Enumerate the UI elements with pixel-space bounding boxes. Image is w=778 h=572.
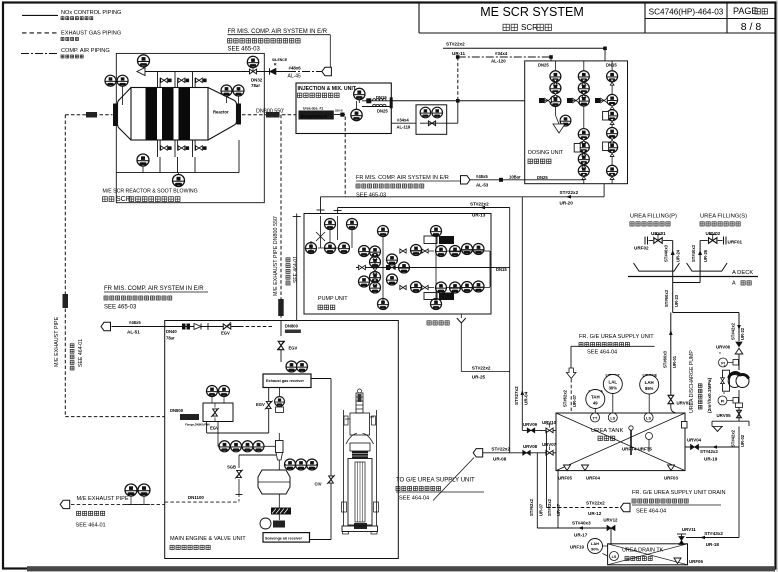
svg-text:M/E EXHAUST PIPE DN800 550': M/E EXHAUST PIPE DN800 550'	[273, 216, 279, 296]
svg-text:SEE 464-04: SEE 464-04	[636, 509, 666, 515]
svg-text:ST#40x3: ST#40x3	[691, 244, 696, 262]
svg-text:URF02: URF02	[634, 246, 649, 251]
svg-text:10Bar: 10Bar	[509, 175, 521, 180]
svg-text:ST#22x2: ST#22x2	[586, 501, 605, 506]
svg-text:ST#43x2: ST#43x2	[704, 531, 723, 536]
svg-text:ST#60x3: ST#60x3	[664, 289, 669, 307]
svg-text:Exhaust gas receiver: Exhaust gas receiver	[266, 379, 305, 383]
svg-text:ST#42x2: ST#42x2	[731, 429, 736, 447]
svg-text:DN1100: DN1100	[188, 495, 204, 500]
svg-text:PI: PI	[721, 400, 725, 404]
svg-text:CIV: CIV	[315, 482, 322, 487]
svg-text:AL-51: AL-51	[127, 330, 140, 335]
svg-text:ST#22x2: ST#22x2	[446, 42, 465, 47]
svg-text:#48x5: #48x5	[129, 320, 141, 325]
svg-text:URV08: URV08	[523, 444, 538, 449]
svg-text:UR-26: UR-26	[703, 249, 708, 262]
svg-text:M/E EXHAUST PIPE: M/E EXHAUST PIPE	[77, 496, 129, 502]
svg-text:FR MIS. COMP. AIR SYSTEM IN E/: FR MIS. COMP. AIR SYSTEM IN E/R	[228, 29, 328, 35]
svg-text:*: *	[719, 352, 721, 358]
svg-text:UR-25: UR-25	[472, 375, 486, 380]
svg-text:URV01: URV01	[651, 231, 666, 236]
svg-text:URV05: URV05	[717, 413, 732, 418]
svg-text:ST#22x2: ST#22x2	[472, 366, 491, 371]
svg-text:AL-45: AL-45	[288, 74, 302, 80]
svg-text:SC4746(HP)-464-03: SC4746(HP)-464-03	[649, 8, 724, 17]
svg-text:DN15: DN15	[376, 95, 387, 100]
svg-text:UREA FILLING(S): UREA FILLING(S)	[700, 214, 747, 220]
svg-text:UR-13: UR-13	[472, 213, 486, 218]
svg-text:MAIN ENGINE & VALVE UNIT: MAIN ENGINE & VALVE UNIT	[170, 536, 246, 542]
svg-text:URF05: URF05	[558, 476, 572, 481]
svg-text:ME SCR SYSTEM: ME SCR SYSTEM	[480, 5, 584, 19]
svg-text:FR MIS. COMP. AIR SYSTEM IN E/: FR MIS. COMP. AIR SYSTEM IN E/R	[104, 286, 204, 292]
svg-text:ST#62x2: ST#62x2	[563, 389, 568, 407]
svg-text:Flange,DN800,PN6: Flange,DN800,PN6	[185, 423, 210, 427]
svg-text:UR-12: UR-12	[588, 511, 602, 516]
svg-text:SEE 465-03: SEE 465-03	[228, 47, 261, 53]
svg-text:85%: 85%	[645, 386, 654, 391]
svg-text:LAH: LAH	[645, 380, 654, 385]
svg-text:SEE 464-01: SEE 464-01	[293, 256, 299, 283]
svg-text:TAH: TAH	[591, 395, 600, 400]
svg-text:URV03: URV03	[677, 401, 692, 406]
svg-text:LAH: LAH	[591, 541, 599, 546]
svg-text:URF19: URF19	[570, 545, 584, 550]
svg-text:A: A	[732, 281, 736, 287]
svg-text:78ar: 78ar	[251, 83, 260, 88]
svg-text:#34x4: #34x4	[495, 51, 508, 56]
svg-text:AL-120: AL-120	[491, 59, 506, 64]
svg-text:#48x6: #48x6	[289, 66, 302, 71]
svg-text:UREA FILLING(P): UREA FILLING(P)	[630, 214, 677, 220]
svg-text:URV04: URV04	[687, 438, 702, 443]
svg-text:DOSING UNIT: DOSING UNIT	[528, 150, 564, 156]
svg-text:TT: TT	[593, 417, 598, 421]
svg-text:SCR: SCR	[116, 196, 131, 203]
svg-text:UR-07: UR-07	[572, 394, 577, 407]
svg-text:UREA DRAIN TK: UREA DRAIN TK	[622, 548, 664, 554]
svg-text:DN25: DN25	[377, 109, 388, 114]
svg-text:Urea dos. #1: Urea dos. #1	[303, 107, 323, 111]
svg-text:URF03: URF03	[664, 476, 678, 481]
svg-text:ST#22x2: ST#22x2	[560, 190, 579, 195]
svg-text:DN25: DN25	[537, 175, 548, 180]
svg-text:EGV: EGV	[256, 402, 265, 407]
svg-text:A DECK: A DECK	[732, 270, 753, 276]
svg-text:AL-53: AL-53	[476, 183, 489, 188]
svg-text:AL-119: AL-119	[397, 125, 411, 130]
svg-text:UR-07: UR-07	[539, 503, 544, 516]
svg-text:ST#22x2: ST#22x2	[470, 202, 489, 207]
svg-text:#48x5: #48x5	[476, 174, 488, 179]
svg-text:UREA TANK: UREA TANK	[591, 428, 623, 434]
svg-text:URF04: URF04	[586, 476, 600, 481]
svg-text:EGV: EGV	[221, 331, 230, 336]
svg-text:30%: 30%	[609, 386, 618, 391]
svg-text:URV11: URV11	[682, 527, 696, 532]
svg-text:#34x4: #34x4	[397, 118, 409, 123]
svg-text:M/E SCR REACTOR & SOOT BLOWING: M/E SCR REACTOR & SOOT BLOWING	[103, 189, 198, 195]
svg-text:M/E EXHAUST PIPE: M/E EXHAUST PIPE	[54, 316, 60, 367]
svg-text:URV12: URV12	[603, 518, 618, 523]
svg-text:DN40: DN40	[166, 329, 177, 334]
svg-text:Reactor: Reactor	[213, 110, 229, 115]
svg-text:UR-19: UR-19	[704, 457, 718, 462]
svg-text:COMP. AIR PIPING: COMP. AIR PIPING	[61, 48, 110, 54]
svg-text:SGB: SGB	[227, 465, 236, 470]
svg-text:UR-23: UR-23	[674, 294, 679, 307]
svg-text:SEE 465-03: SEE 465-03	[356, 193, 386, 199]
svg-text:DN800: DN800	[285, 324, 299, 329]
svg-text:UR-17: UR-17	[574, 533, 588, 538]
svg-text:SEE 464-04: SEE 464-04	[587, 350, 617, 356]
svg-text:Scavenge air receiver: Scavenge air receiver	[265, 537, 303, 541]
svg-text:SEE 464-04: SEE 464-04	[399, 496, 429, 502]
svg-text:DN15: DN15	[606, 63, 617, 68]
svg-text:(2m³/hx0.3MPa): (2m³/hx0.3MPa)	[707, 377, 713, 413]
svg-text:UR-22: UR-22	[740, 327, 745, 340]
svg-text:UR-01: UR-01	[672, 355, 677, 368]
svg-text:URV07: URV07	[542, 442, 557, 447]
svg-text:URF06: URF06	[689, 559, 703, 564]
svg-text:UR-20: UR-20	[560, 201, 574, 206]
svg-text:PUMP UNIT: PUMP UNIT	[318, 296, 348, 302]
svg-text:UR-02: UR-02	[740, 434, 745, 447]
svg-text:90%: 90%	[591, 547, 599, 552]
svg-text:78ar: 78ar	[166, 336, 175, 341]
svg-text:ST#27x2: ST#27x2	[514, 386, 519, 405]
svg-text:49: 49	[593, 401, 598, 406]
svg-text:UR-04: UR-04	[524, 391, 529, 405]
svg-text:LS: LS	[612, 555, 617, 559]
svg-text:ST#22x2: ST#22x2	[491, 447, 510, 452]
svg-text:INJECTION & MIX. UNIT: INJECTION & MIX. UNIT	[298, 86, 357, 92]
svg-text:ST#42x2: ST#42x2	[731, 322, 736, 340]
svg-text:TO G/E UREA SUPPLY UNIT: TO G/E UREA SUPPLY UNIT	[396, 478, 475, 484]
svg-text:SEE 464-01: SEE 464-01	[78, 339, 84, 367]
svg-text:URV09: URV09	[523, 422, 538, 427]
svg-text:FR. G/E UREA SUPPLY UNIT DRAIN: FR. G/E UREA SUPPLY UNIT DRAIN	[632, 490, 726, 496]
svg-text:*: *	[724, 365, 726, 371]
svg-text:UR-24: UR-24	[676, 249, 681, 262]
svg-text:UR-27: UR-27	[556, 503, 561, 516]
svg-text:ST#40x3: ST#40x3	[664, 244, 669, 262]
svg-text:DN32: DN32	[251, 78, 263, 83]
svg-text:SILENCE: SILENCE	[272, 58, 288, 62]
svg-text:URF01: URF01	[728, 240, 743, 245]
svg-text:ST#42x2: ST#42x2	[700, 449, 718, 454]
svg-text:URFT4-URFT5: URFT4-URFT5	[622, 447, 652, 452]
svg-text:DN800 550': DN800 550'	[256, 109, 284, 115]
svg-text:ST#60x3: ST#60x3	[663, 350, 668, 368]
svg-text:DN800: DN800	[170, 408, 184, 413]
svg-text:ST#62x2: ST#62x2	[529, 498, 534, 516]
svg-text:DN25: DN25	[538, 63, 549, 68]
svg-text:PAGE: PAGE	[733, 6, 757, 16]
svg-text:225-B: 225-B	[335, 109, 343, 113]
svg-text:URV06: URV06	[716, 345, 731, 350]
svg-text:EGV: EGV	[289, 346, 298, 351]
svg-text:FR MIS. COMP. AIR SYSTEM IN E/: FR MIS. COMP. AIR SYSTEM IN E/R	[356, 175, 449, 181]
svg-text:FR. G/E UREA SUPPLY UNIT: FR. G/E UREA SUPPLY UNIT	[579, 334, 654, 340]
svg-text:UR-08: UR-08	[493, 457, 507, 462]
svg-text:EXHAUST GAS PIPING: EXHAUST GAS PIPING	[61, 31, 121, 37]
svg-text:SCR: SCR	[521, 23, 538, 32]
svg-text:8 / 8: 8 / 8	[741, 21, 762, 33]
svg-text:UR-18: UR-18	[706, 542, 720, 547]
svg-text:NOx CONTROL PIPING: NOx CONTROL PIPING	[61, 10, 121, 16]
svg-text:Mixing/Piping kit: Mixing/Piping kit	[301, 115, 329, 119]
svg-text:SEE 465-03: SEE 465-03	[104, 305, 137, 311]
svg-text:SEE 464-01: SEE 464-01	[76, 523, 106, 529]
svg-text:LS: LS	[610, 417, 615, 421]
svg-text:LAL: LAL	[609, 380, 618, 385]
svg-text:ST#40x3: ST#40x3	[572, 521, 591, 526]
svg-text:LS: LS	[646, 417, 651, 421]
